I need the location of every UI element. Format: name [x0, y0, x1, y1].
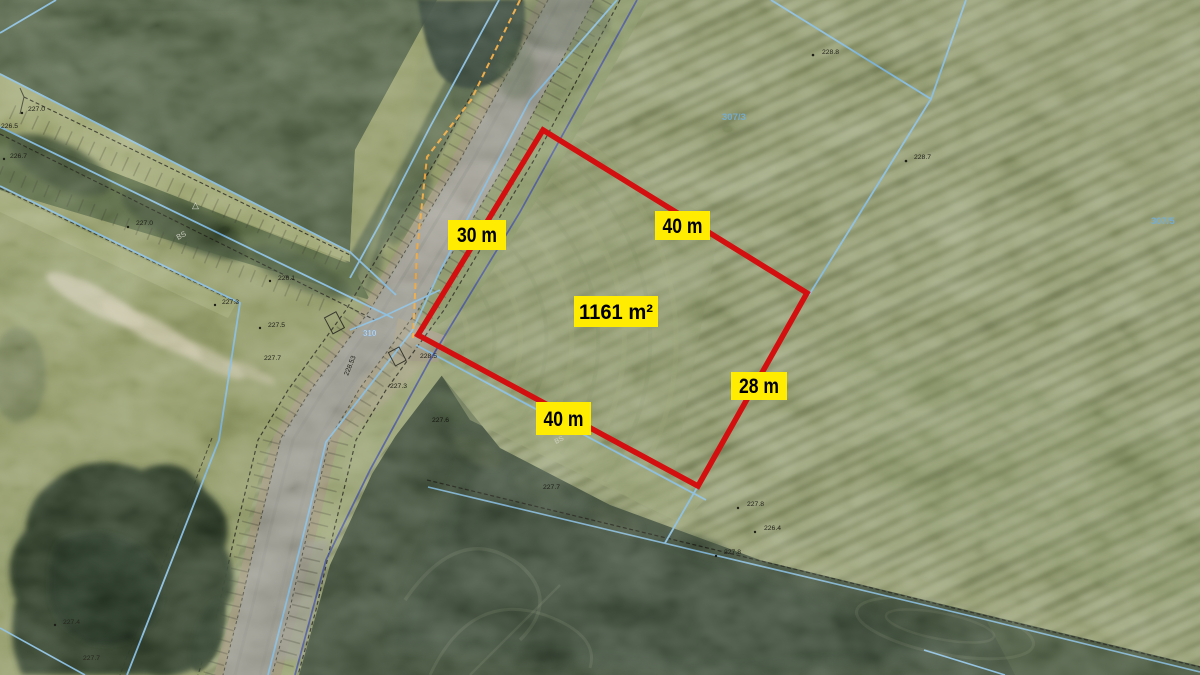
svg-text:228.7: 228.7 — [914, 154, 931, 161]
svg-text:310: 310 — [363, 329, 377, 338]
svg-text:227.5: 227.5 — [268, 322, 285, 329]
svg-text:40 m: 40 m — [544, 408, 584, 431]
svg-text:227.7: 227.7 — [264, 355, 281, 362]
svg-text:227.3: 227.3 — [222, 299, 239, 306]
svg-text:227.0: 227.0 — [28, 106, 45, 113]
svg-text:228.5: 228.5 — [420, 353, 437, 360]
svg-text:△: △ — [192, 200, 199, 210]
svg-text:28 m: 28 m — [739, 375, 779, 398]
svg-text:307/5: 307/5 — [1151, 216, 1175, 227]
svg-text:227.8: 227.8 — [747, 501, 764, 508]
svg-text:228.8: 228.8 — [822, 49, 839, 56]
svg-text:226.5: 226.5 — [1, 123, 18, 130]
svg-text:226.1: 226.1 — [278, 275, 295, 282]
svg-text:227.0: 227.0 — [136, 220, 153, 227]
svg-text:227.7: 227.7 — [83, 655, 100, 662]
svg-text:226.4: 226.4 — [764, 525, 781, 532]
svg-text:307/3: 307/3 — [722, 112, 746, 123]
svg-text:227.7: 227.7 — [543, 484, 560, 491]
svg-text:30 m: 30 m — [457, 224, 497, 247]
svg-text:227.8: 227.8 — [724, 549, 741, 556]
svg-text:227.4: 227.4 — [63, 619, 80, 626]
svg-text:40 m: 40 m — [663, 215, 703, 238]
svg-text:227.3: 227.3 — [390, 383, 407, 390]
svg-text:1161 m²: 1161 m² — [579, 301, 653, 324]
svg-text:227.6: 227.6 — [432, 417, 449, 424]
svg-text:226.7: 226.7 — [10, 153, 27, 160]
